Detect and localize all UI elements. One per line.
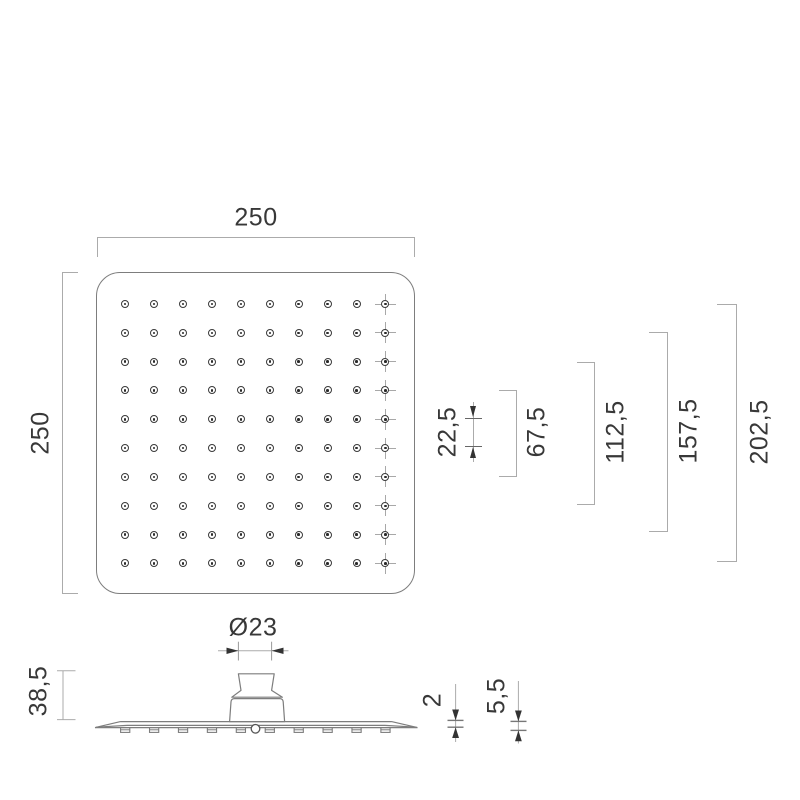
dim-label-span-202-5: 202,5 [748, 399, 773, 464]
dim-label-span-112-5: 112,5 [604, 400, 629, 463]
dim-bracket-span-157-5 [649, 332, 668, 532]
dim-bracket-plate-width [97, 237, 415, 257]
connector-profile [230, 674, 285, 722]
showerhead-top-view-plate [96, 272, 415, 594]
dim-rim-height [511, 681, 527, 744]
dim-tick-span-22-5-top [465, 418, 482, 420]
dim-label-plate-thickness: 2 [421, 693, 446, 707]
dim-bracket-overall-height [57, 671, 76, 720]
dim-label-plate-height: 250 [29, 411, 54, 454]
center-outlet-circle [251, 725, 260, 734]
dim-connector-diameter [218, 642, 289, 661]
dim-label-connector-diameter: Ø23 [229, 616, 278, 641]
showerhead-side-view [40, 615, 550, 763]
dim-label-span-157-5: 157,5 [677, 398, 702, 463]
dim-bracket-span-67-5 [499, 390, 517, 477]
dim-label-overall-height: 38,5 [27, 666, 52, 717]
dim-label-span-22-5: 22,5 [436, 407, 461, 458]
dim-label-plate-width: 250 [234, 206, 277, 231]
dim-plate-thickness [448, 684, 464, 742]
technical-drawing-canvas: 250 250 22,5 67,5 112,5 157,5 202,5 [0, 0, 800, 800]
dim-bracket-span-112-5 [577, 362, 595, 505]
dim-label-span-67-5: 67,5 [525, 407, 550, 458]
dim-bracket-plate-height [62, 272, 78, 594]
dim-arrow-down [470, 406, 476, 417]
dim-bracket-span-202-5 [717, 304, 737, 562]
dim-label-rim-height: 5,5 [485, 678, 510, 714]
dim-arrow-up [470, 447, 476, 458]
